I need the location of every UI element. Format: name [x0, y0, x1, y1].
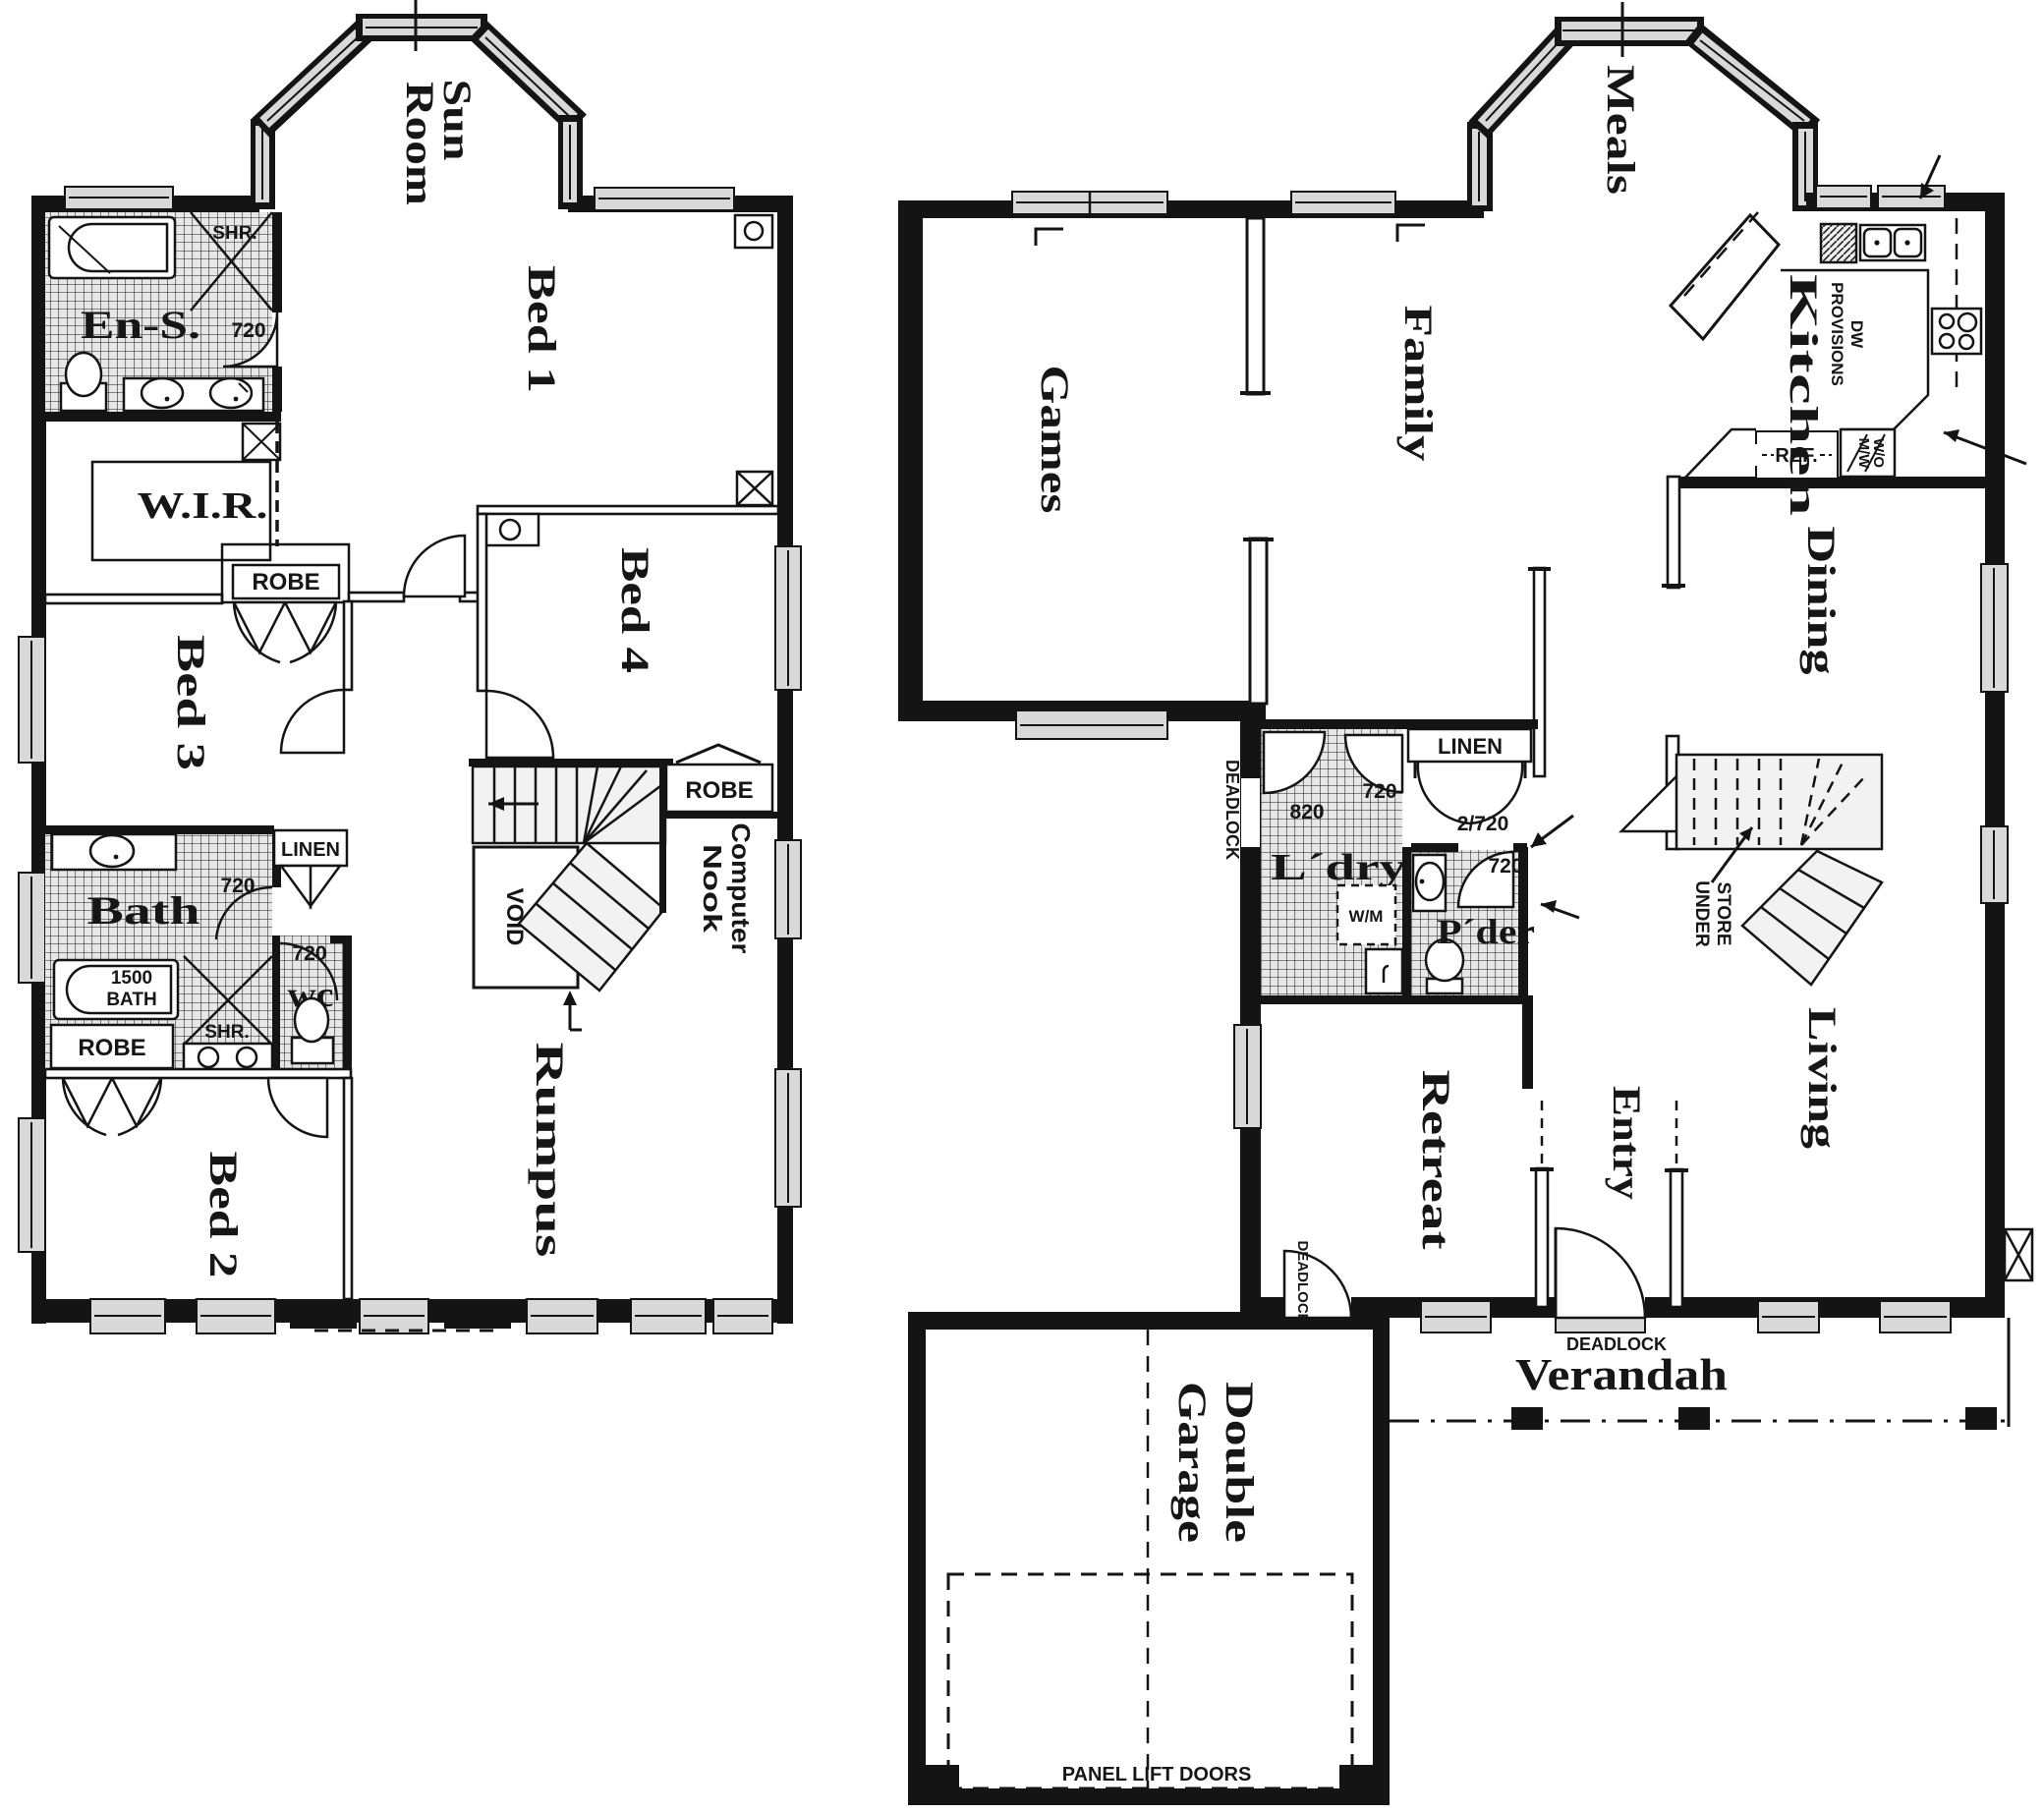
svg-text:SHR.: SHR.: [212, 223, 256, 244]
svg-text:Retreat: Retreat: [1414, 1070, 1458, 1251]
svg-text:Rumpus: Rumpus: [528, 1043, 572, 1258]
svg-text:W/M: W/M: [1349, 907, 1384, 926]
svg-text:Nook: Nook: [698, 844, 727, 934]
svg-text:Bed 2: Bed 2: [201, 1152, 246, 1278]
svg-text:Bed 4: Bed 4: [613, 547, 657, 673]
svg-text:DEADLOCK: DEADLOCK: [1294, 1241, 1311, 1325]
svg-text:Bath: Bath: [87, 888, 200, 933]
svg-text:LINEN: LINEN: [1438, 734, 1503, 759]
svg-text:M/W: M/W: [1855, 438, 1872, 470]
svg-text:SHR.: SHR.: [204, 1022, 249, 1043]
svg-text:Games: Games: [1033, 366, 1077, 514]
svg-text:Room: Room: [398, 82, 442, 205]
svg-text:2/720: 2/720: [1457, 813, 1509, 835]
svg-text:LINEN: LINEN: [281, 839, 340, 861]
svg-text:En-S.: En-S.: [81, 303, 200, 347]
svg-text:Kitchen: Kitchen: [1782, 274, 1826, 516]
svg-text:Dining: Dining: [1799, 527, 1844, 675]
svg-text:Double: Double: [1218, 1382, 1262, 1543]
svg-text:720: 720: [220, 875, 255, 897]
svg-text:820: 820: [1289, 801, 1324, 823]
svg-text:Bed 3: Bed 3: [169, 635, 213, 770]
svg-text:720: 720: [1488, 855, 1522, 878]
svg-text:Entry: Entry: [1605, 1086, 1649, 1200]
svg-text:UNDER: UNDER: [1691, 880, 1712, 947]
svg-text:Meals: Meals: [1599, 65, 1643, 195]
svg-text:ROBE: ROBE: [252, 569, 319, 595]
svg-text:Computer: Computer: [726, 823, 756, 954]
svg-text:DW: DW: [1847, 320, 1866, 349]
svg-text:Garage: Garage: [1170, 1382, 1215, 1543]
svg-text:PROVISIONS: PROVISIONS: [1828, 282, 1846, 386]
svg-text:PANEL LIFT DOORS: PANEL LIFT DOORS: [1062, 1764, 1252, 1786]
svg-text:Living: Living: [1800, 1007, 1845, 1149]
svg-text:DEADLOCK: DEADLOCK: [1222, 760, 1242, 860]
svg-text:BATH: BATH: [106, 990, 156, 1010]
svg-text:Bed 1: Bed 1: [520, 265, 564, 393]
svg-text:Family: Family: [1396, 306, 1441, 462]
svg-text:W.I.R.: W.I.R.: [138, 485, 268, 527]
svg-text:ROBE: ROBE: [685, 777, 753, 804]
svg-text:ROBE: ROBE: [78, 1035, 145, 1061]
svg-text:720: 720: [231, 319, 265, 342]
svg-text:720: 720: [1362, 780, 1396, 803]
svg-text:STORE: STORE: [1713, 881, 1733, 945]
svg-text:L´dry: L´dry: [1271, 847, 1406, 888]
svg-text:1500: 1500: [111, 968, 152, 989]
svg-text:Verandah: Verandah: [1515, 1349, 1728, 1399]
